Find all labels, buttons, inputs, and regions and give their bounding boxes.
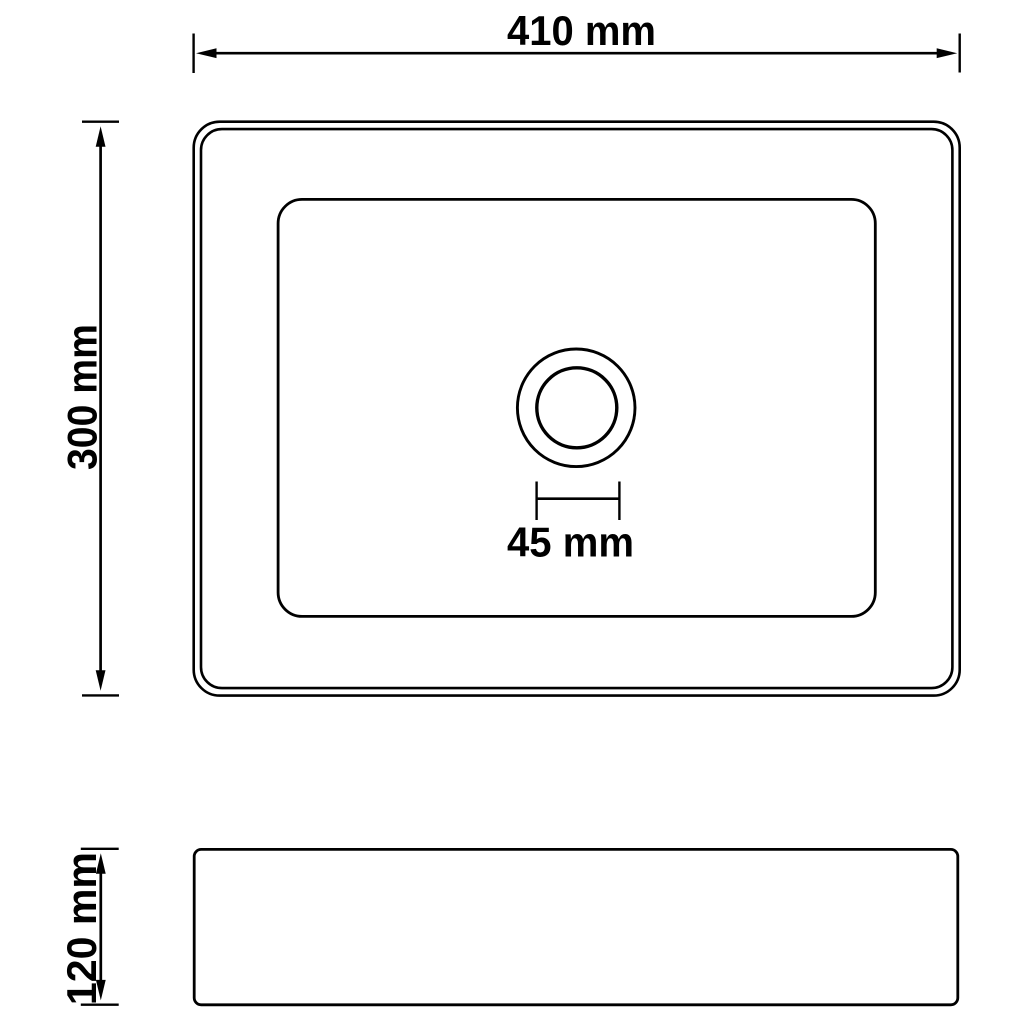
svg-text:45 mm: 45 mm <box>507 519 634 566</box>
svg-text:300 mm: 300 mm <box>58 324 105 470</box>
svg-text:410 mm: 410 mm <box>507 7 656 54</box>
svg-text:120 mm: 120 mm <box>58 852 105 1005</box>
